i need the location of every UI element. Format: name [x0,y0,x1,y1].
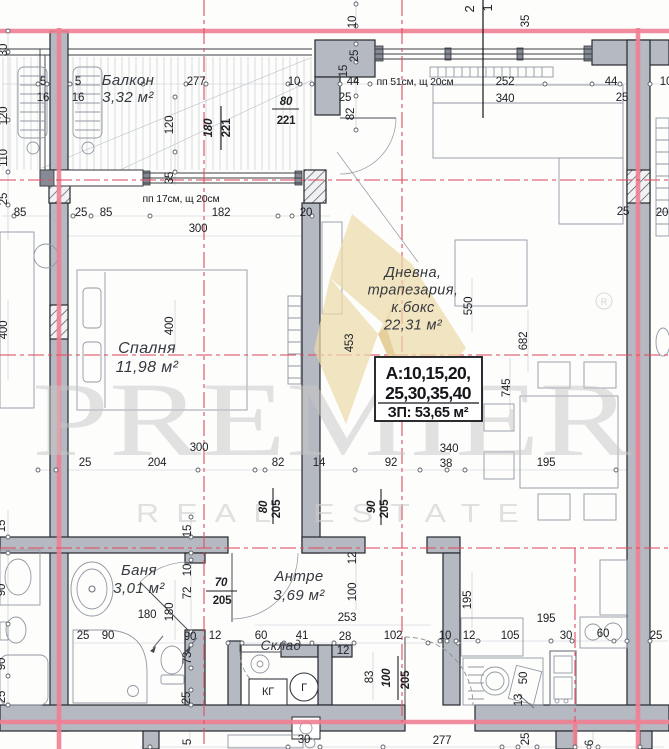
dimension-label: 205 [271,499,283,518]
dimension-tick [648,82,652,86]
dimension-tick [276,214,280,218]
dimension-label: 28 [339,631,351,643]
dimension-label: 90 [102,630,114,642]
dimension-label: 25 [650,630,662,642]
dimension-label: 90 [184,631,196,643]
room-label: 22,31 м² [383,318,443,334]
dimension-tick [454,639,458,643]
dimension-label: 682 [518,332,530,351]
room-label: Балкон [102,72,154,89]
dimension-label: 25 [616,92,628,104]
registered-letter: R [601,297,608,307]
dimension-label: 300 [190,442,209,454]
dimension-label: 120 [164,116,176,135]
dimension-label: 90 [0,584,8,596]
dimension-tick [618,82,622,86]
dimension-label: 102 [384,630,403,642]
dimension-tick [290,214,294,218]
dimension-tick [196,468,200,472]
dimension-label: 300 [189,223,208,235]
dimension-label: 60 [255,630,267,642]
dimension-label: 205 [400,670,412,689]
dimension-label: 1 [480,4,495,11]
dimension-label: 5 [75,76,81,88]
dimension-label: 25 [75,207,87,219]
dimension-tick [310,82,314,86]
dimension-label: 12 [463,630,475,642]
neighbor-toilet [6,617,26,643]
chair [538,494,570,520]
dimension-label: 20 [300,207,312,219]
dimension-tick [535,745,539,749]
dimension-label: 12 [337,645,349,657]
dimension-label: 25 [520,733,532,745]
dimension-label: 35 [520,15,532,27]
dimension-tick [338,82,342,86]
dimension-label: 221 [221,118,233,137]
dimension-tick [263,468,267,472]
dimension-label: 340 [440,443,459,455]
dimension-tick [54,468,58,472]
dimension-tick [354,2,358,6]
dimension-tick [354,128,358,132]
dimension-label: 10 [660,76,669,88]
room-label: 3,32 м² [102,89,154,106]
dimension-label: 182 [212,207,231,219]
parapet-note: пп 51см, щ 20см [377,76,454,88]
dimension-tick [590,82,594,86]
toilet [161,646,183,674]
apartment-numbers-line2: 25,30,35,40 [385,383,472,403]
dimension-tick [189,558,193,562]
dimension-label: 72 [182,587,194,599]
dimension-tick [240,641,244,645]
dimension-tick [189,688,193,692]
dimension-label: 252 [496,76,515,88]
coffee-table [455,240,527,306]
dimension-tick [6,170,10,174]
room-label: 3,69 м² [273,587,325,604]
dimension-tick [426,641,430,645]
dimension-label: 25 [349,50,361,62]
dimension-label: 120 [0,107,10,126]
dimension-label: 550 [463,297,475,316]
dimension-tick [476,639,480,643]
dimension-label: 15 [0,520,8,532]
dimension-tick [381,745,385,749]
dimension-label: 82 [345,108,357,120]
dimension-label: 80 [258,500,270,513]
room-label: 3,01 м² [113,580,165,597]
dimension-label: 16 [37,92,49,104]
dimension-label: 100 [381,668,393,687]
dimension-label: 15 [182,525,194,537]
balcony-door-arc [340,118,396,174]
dimension-label: 80 [280,96,293,108]
dimension-label: 25 [181,692,193,704]
dimension-label: 44 [347,76,360,88]
dimension-label: 5 [182,739,194,745]
chair [584,494,616,520]
dimension-label: 30 [0,44,10,56]
kitchen-sink-unit [463,658,543,705]
pillow [83,288,101,328]
dimension-tick [6,674,10,678]
parapet-note: пп 17см, щ 20см [143,193,220,205]
room-label: к.бокс [391,300,435,316]
dimension-label: 10 [439,630,451,642]
dimension-tick [148,745,152,749]
dimension-tick [353,468,357,472]
watermark-tagline: REAL ESTATE [136,498,536,528]
dimension-tick [6,535,10,539]
dimension-label: 25 [79,457,91,469]
sink-bowl [481,667,509,695]
dimension-tick [189,515,193,519]
dimension-tick [549,639,553,643]
shower-drain [128,686,139,697]
dimension-label: 180 [203,118,215,137]
dimension-tick [332,641,336,645]
dimension-label: 44 [605,76,618,88]
dimension-label: 400 [0,321,10,340]
dimension-tick [189,666,193,670]
dimension-label: 30 [298,734,310,746]
dimension-label: 10 [288,76,300,88]
dimension-label: 205 [213,595,232,607]
appliance-label: КГ [262,686,274,698]
dimension-tick [614,468,618,472]
dimension-label: 85 [14,207,26,219]
dimension-tick [173,95,177,99]
dimension-label: 253 [338,612,357,624]
room-label: Дневна, [383,265,442,281]
dimension-label: 16 [72,92,84,104]
dimension-tick [543,82,547,86]
dimension-tick [6,551,10,555]
dimension-label: 83 [364,671,376,683]
dimension-label: 35 [164,172,176,184]
dimension-label: 180 [164,603,176,622]
dimension-tick [352,641,356,645]
dimension-label: 195 [462,591,474,610]
dimension-tick [6,622,10,626]
dimension-tick [253,468,257,472]
appliance-label: Г [301,682,307,694]
boiler [251,655,269,673]
dimension-label: 60 [597,628,609,640]
room-label: Антре [273,568,323,585]
sofa-chaise [559,158,623,224]
dimension-tick [354,42,358,46]
floor-plan-svg: PREMIER REAL ESTATE R А:10,15,20, 25,30,… [0,0,669,749]
dimension-label: 12 [347,552,359,564]
dimension-tick [638,745,642,749]
dimension-tick [596,745,600,749]
bedroom-door-arc [232,553,298,619]
dimension-tick [226,641,230,645]
dimension-label: 105 [501,630,520,642]
dimension-tick [173,150,177,154]
dimension-label: 25 [617,206,629,218]
dimension-label: 745 [501,379,513,398]
dimension-label: 70 [215,577,228,589]
dimension-label: 25 [0,691,8,703]
dimension-label: 204 [148,457,167,469]
dimension-tick [189,643,193,647]
dimension-label: 205 [379,499,391,518]
column-hatched [304,170,326,203]
dimension-tick [625,639,629,643]
room-label: Баня [121,562,157,579]
dimension-label: 2 [462,5,477,12]
dimension-tick [89,214,93,218]
dimension-label: 82 [272,457,284,469]
dimension-label: 10 [347,16,359,28]
dimension-label: 100 [347,583,359,602]
dimension-label: 90 [0,658,8,670]
dimension-label: 221 [277,115,296,127]
dimension-label: 6 [584,740,596,746]
dimension-label: 180 [138,609,157,621]
dimension-label: 90 [366,500,378,513]
dimension-label: 85 [100,207,112,219]
room-label: Спалня [118,340,176,357]
dimension-tick [310,641,314,645]
dimension-label: 277 [433,735,452,747]
dimension-label: 13 [513,694,525,706]
dimension-label: 30 [560,630,572,642]
dimension-label: 277 [187,76,206,88]
dimension-label: 20 [656,207,668,219]
dimension-label: 400 [164,317,176,336]
dimension-label: 25 [0,193,10,205]
dimension-label: 195 [537,457,556,469]
dimension-tick [612,639,616,643]
dimension-tick [463,468,467,472]
dimension-label: 38 [440,458,452,470]
dimension-tick [6,29,10,33]
dimension-label: 12 [209,630,221,642]
dimension-label: 5 [40,76,46,88]
dimension-tick [36,468,40,472]
dimension-label: 195 [537,613,556,625]
dimension-tick [368,82,372,86]
dimension-label: 10 [182,564,194,576]
dimension-tick [148,214,152,218]
dimension-tick [418,468,422,472]
dimension-label: 25 [77,630,89,642]
built-area-value: ЗП: 53,65 м² [388,405,469,421]
dimension-tick [318,745,322,749]
apartment-numbers-line1: А:10,15,20, [386,363,471,383]
dimension-tick [573,745,577,749]
dimension-label: 50 [518,672,530,684]
dimension-tick [68,82,72,86]
dimension-label: 73 [182,652,194,664]
dimension-label: 25 [339,92,351,104]
dimension-tick [286,745,290,749]
dimension-label: 453 [344,334,356,353]
tall-cabinet [600,560,627,615]
neighbor-bed [0,232,34,408]
dimension-tick [354,94,358,98]
dimension-label: 340 [496,93,515,105]
sofa [433,85,623,158]
dimension-label: 14 [313,457,326,469]
dimension-label: 92 [385,457,397,469]
dimension-tick [189,551,193,555]
room-label: 11,98 м² [116,359,179,376]
room-label: трапезария, [368,283,459,299]
apartment-info-box: А:10,15,20, 25,30,35,40 ЗП: 53,65 м² [375,357,482,421]
window-parapet [40,170,143,186]
floor-plan: PREMIER REAL ESTATE R А:10,15,20, 25,30,… [0,0,669,749]
dimension-tick [500,745,504,749]
dimension-label: 110 [0,149,10,167]
dimension-label: 41 [296,630,308,642]
